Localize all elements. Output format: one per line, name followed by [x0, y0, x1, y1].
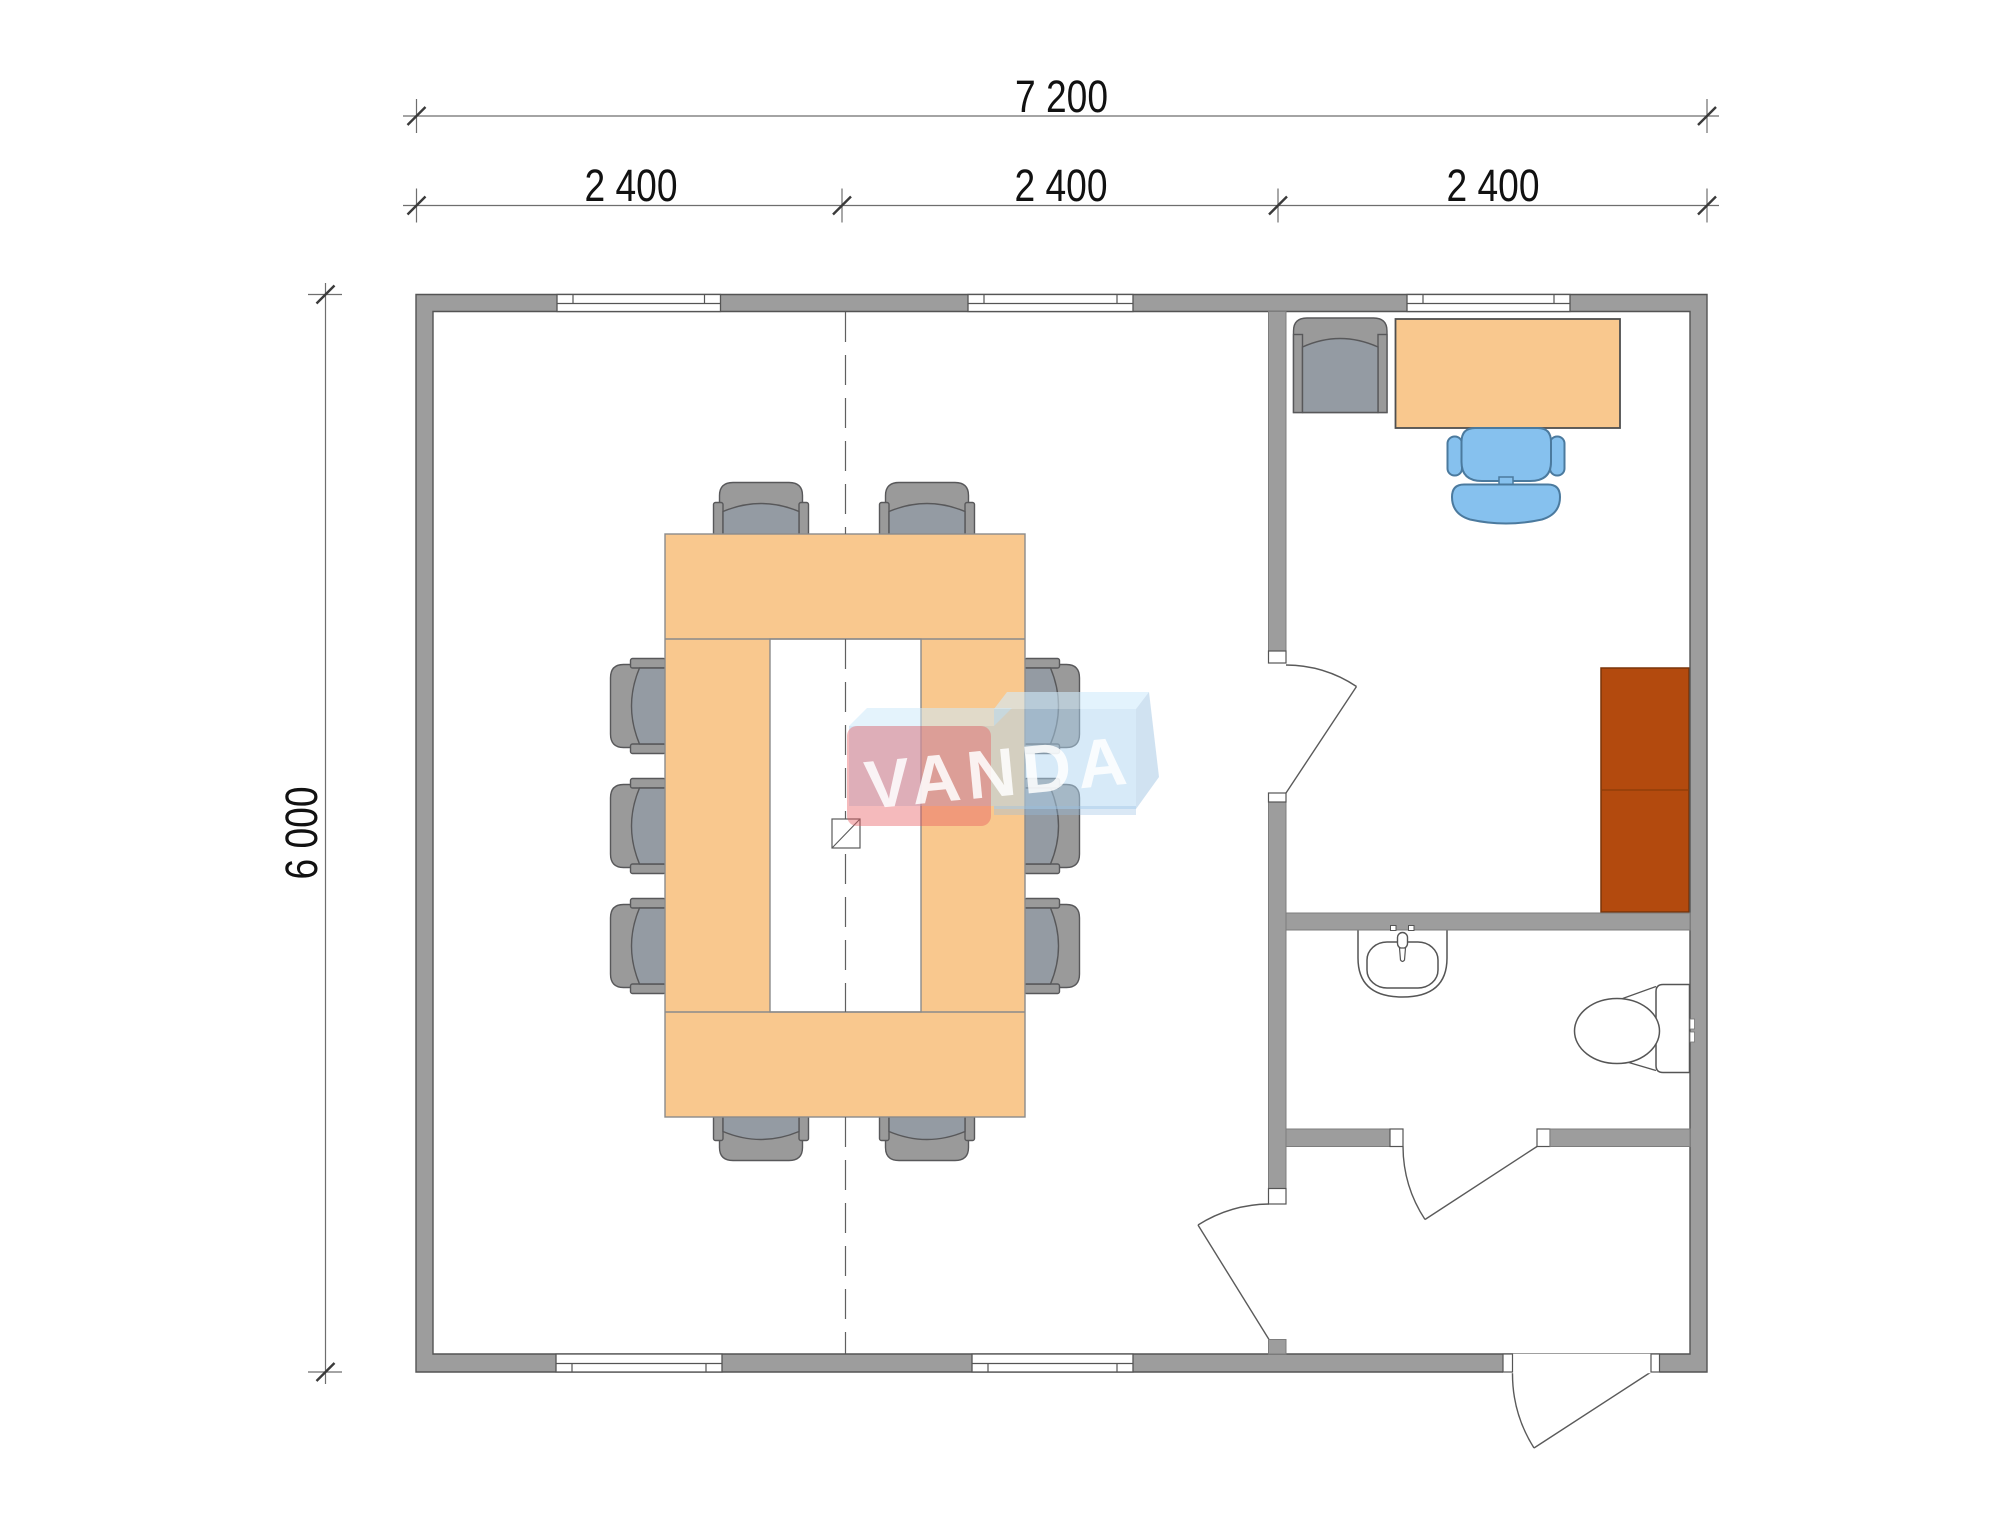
- svg-text:2 400: 2 400: [1015, 160, 1108, 211]
- svg-text:6 000: 6 000: [276, 787, 327, 880]
- svg-text:2 400: 2 400: [1447, 160, 1540, 211]
- svg-text:2 400: 2 400: [585, 160, 678, 211]
- svg-text:7 200: 7 200: [1015, 71, 1108, 122]
